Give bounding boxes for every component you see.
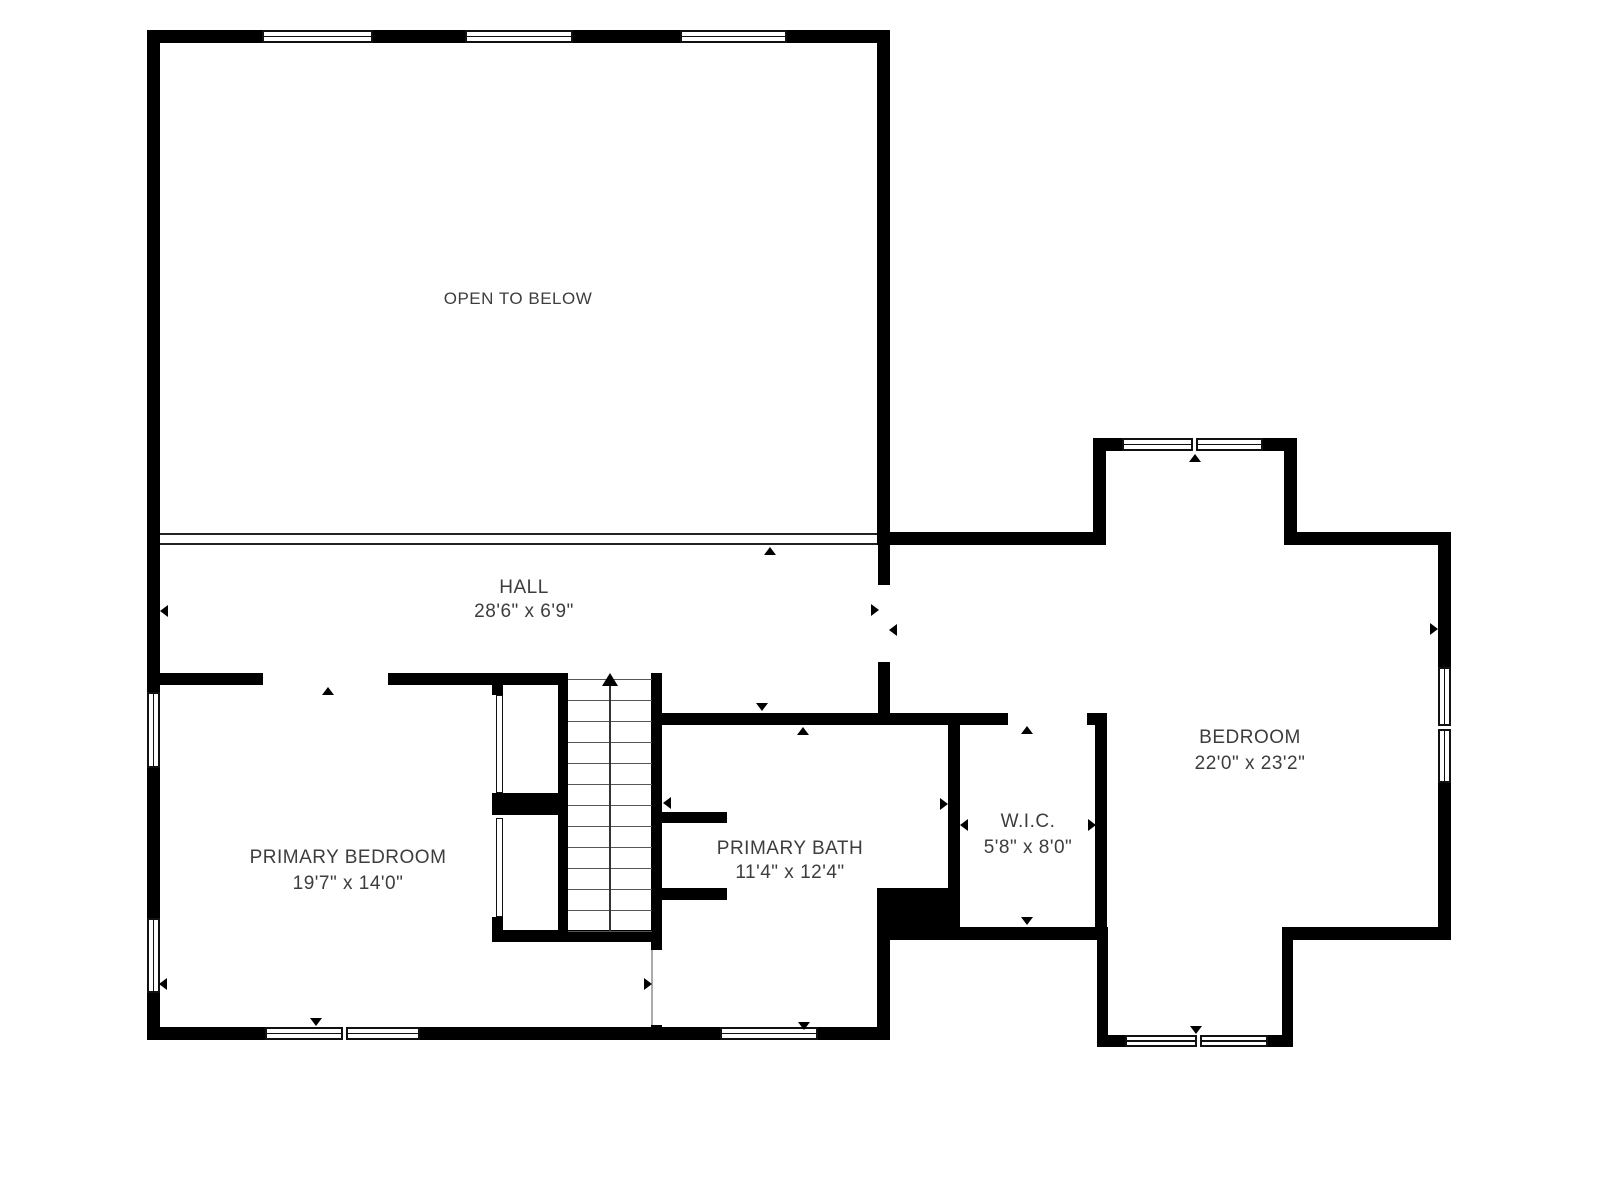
window — [1125, 1035, 1268, 1047]
wall-segment — [147, 30, 160, 1040]
window-glass-line — [153, 694, 155, 766]
door-marker-left-icon — [960, 819, 968, 831]
room-name: PRIMARY BEDROOM — [250, 847, 447, 869]
window-divider — [341, 1027, 348, 1040]
window — [262, 30, 373, 43]
room-dimensions: 22'0" x 23'2" — [1195, 753, 1306, 775]
window-glass-line — [467, 36, 571, 38]
wall-segment — [492, 917, 503, 942]
door-marker-left-icon — [160, 605, 168, 617]
door-marker-up-icon — [1189, 454, 1201, 462]
closet-door — [496, 695, 503, 793]
window-divider — [1438, 724, 1451, 731]
wall-segment — [147, 673, 263, 685]
wall-segment — [662, 888, 727, 900]
wall-segment — [558, 673, 568, 942]
wall-segment — [948, 713, 960, 892]
wall-segment — [1284, 927, 1451, 940]
wall-segment — [651, 930, 662, 950]
wall-segment — [1093, 438, 1106, 545]
room-name: PRIMARY BATH — [717, 838, 863, 860]
door-marker-right-icon — [1430, 623, 1438, 635]
wall-segment — [1097, 927, 1108, 1047]
door-marker-down-icon — [1190, 1026, 1202, 1034]
wall-segment — [388, 673, 568, 685]
room-dimensions: 11'4" x 12'4" — [735, 862, 844, 884]
wall-segment — [877, 30, 890, 545]
door-marker-up-icon — [1021, 726, 1033, 734]
door-marker-down-icon — [756, 703, 768, 711]
door-marker-up-icon — [797, 727, 809, 735]
window-divider — [1195, 1035, 1202, 1047]
wall-segment — [651, 1025, 662, 1040]
room-name: W.I.C. — [1001, 811, 1056, 833]
window-glass-line — [153, 920, 155, 991]
room-dimensions: 28'6" x 6'9" — [474, 601, 574, 623]
floor-plan: OPEN TO BELOWHALL28'6" x 6'9"PRIMARY BED… — [0, 0, 1600, 1200]
window — [680, 30, 787, 43]
wall-segment — [878, 662, 890, 713]
door-marker-left-icon — [159, 978, 167, 990]
window-glass-line — [682, 36, 785, 38]
wall-segment — [877, 925, 890, 1040]
room-name: OPEN TO BELOW — [444, 289, 593, 309]
room-name: HALL — [499, 577, 549, 599]
railing — [160, 533, 877, 545]
door-marker-left-icon — [663, 797, 671, 809]
window-divider — [1191, 438, 1198, 451]
stair-direction-line — [609, 685, 611, 931]
window — [465, 30, 573, 43]
window — [1438, 667, 1451, 783]
room-dimensions: 19'7" x 14'0" — [293, 873, 404, 895]
wall-segment — [662, 812, 727, 823]
door-marker-right-icon — [940, 798, 948, 810]
room-dimensions: 5'8" x 8'0" — [984, 837, 1073, 859]
wall-segment — [492, 793, 558, 815]
window — [265, 1027, 420, 1040]
window — [1122, 438, 1263, 451]
door-marker-up-icon — [322, 687, 334, 695]
window — [147, 692, 160, 768]
wall-segment — [1284, 532, 1451, 545]
window-glass-line — [722, 1033, 816, 1035]
wall-segment — [492, 685, 503, 695]
stair-tread — [568, 931, 652, 932]
door-marker-right-icon — [644, 978, 652, 990]
door-marker-up-icon — [764, 547, 776, 555]
wall-segment — [652, 713, 1008, 725]
wall-segment — [878, 532, 1106, 545]
door-marker-right-icon — [1088, 819, 1096, 831]
door-marker-down-icon — [798, 1022, 810, 1030]
wall-segment — [1284, 438, 1297, 545]
stair-up-arrow-icon — [602, 673, 618, 686]
wall-segment — [1095, 713, 1107, 940]
closet-door — [496, 818, 503, 917]
door-marker-down-icon — [1021, 917, 1033, 925]
wall-segment — [878, 545, 890, 585]
wall-segment — [1282, 927, 1293, 1047]
wall-segment — [877, 888, 960, 930]
room-name: BEDROOM — [1199, 727, 1301, 749]
window-glass-line — [264, 36, 371, 38]
door-marker-down-icon — [310, 1018, 322, 1026]
door-marker-left-icon — [889, 624, 897, 636]
door-marker-right-icon — [871, 604, 879, 616]
